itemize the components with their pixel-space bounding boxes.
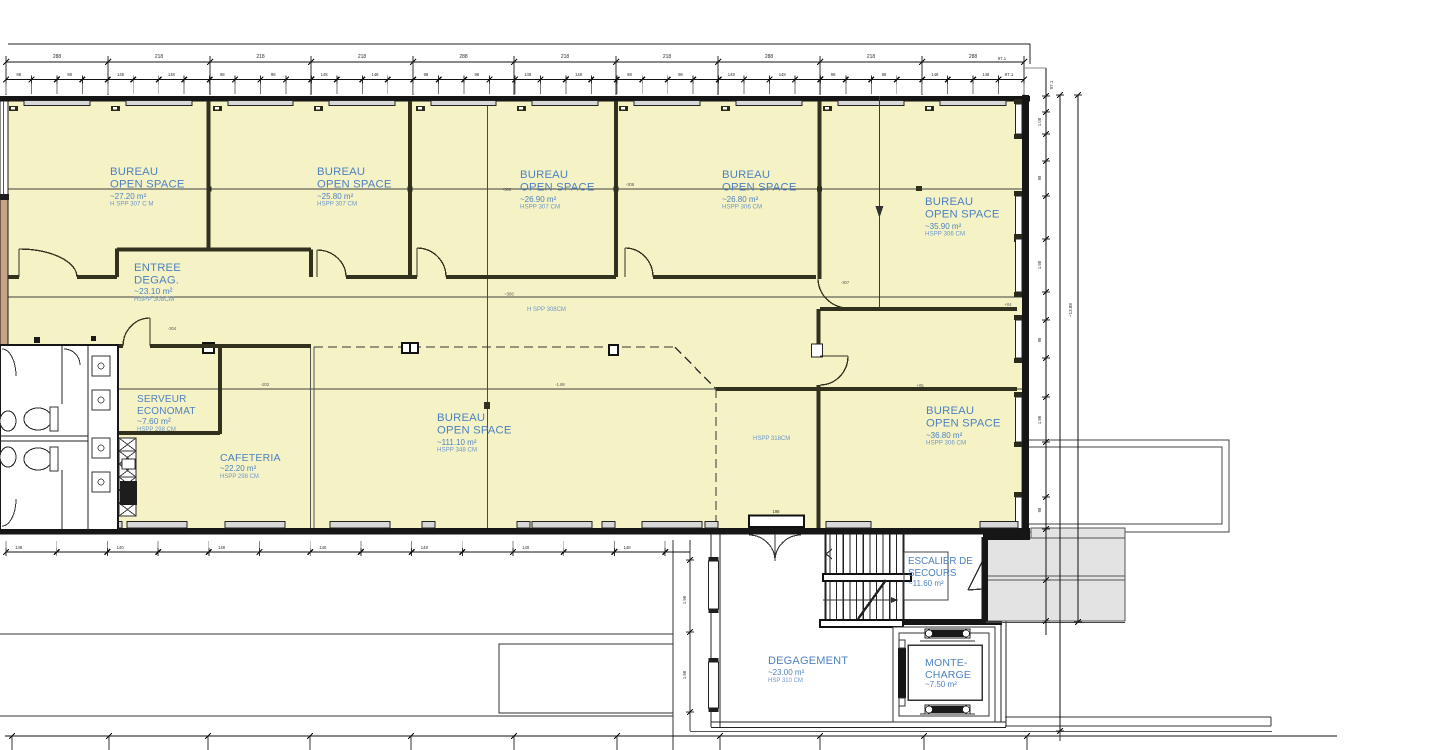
svg-text:140: 140 bbox=[117, 545, 125, 550]
svg-text:HSPP 308CM: HSPP 308CM bbox=[134, 296, 174, 303]
svg-text:HSPP 306 CM: HSPP 306 CM bbox=[926, 440, 966, 447]
svg-text:98: 98 bbox=[16, 72, 21, 77]
svg-text:~22.20 m²: ~22.20 m² bbox=[220, 464, 257, 473]
svg-text:148: 148 bbox=[421, 545, 429, 550]
svg-text:1.98: 1.98 bbox=[1037, 415, 1042, 424]
svg-text:OPEN SPACE: OPEN SPACE bbox=[520, 182, 595, 194]
svg-text:1.08: 1.08 bbox=[1037, 117, 1042, 126]
svg-text:98: 98 bbox=[1037, 175, 1042, 180]
svg-text:98: 98 bbox=[882, 72, 887, 77]
svg-text:MONTE-: MONTE- bbox=[925, 657, 968, 669]
svg-text:OPEN SPACE: OPEN SPACE bbox=[925, 209, 1000, 221]
svg-text:CAFETERIA: CAFETERIA bbox=[220, 452, 281, 464]
svg-text:148: 148 bbox=[931, 72, 939, 77]
svg-text:BUREAU: BUREAU bbox=[110, 166, 158, 178]
svg-text:-307: -307 bbox=[841, 280, 850, 285]
svg-text:DEGAG.: DEGAG. bbox=[134, 275, 179, 287]
svg-text:148: 148 bbox=[218, 545, 226, 550]
svg-text:148: 148 bbox=[982, 72, 990, 77]
svg-text:148: 148 bbox=[321, 72, 329, 77]
svg-text:148: 148 bbox=[624, 545, 632, 550]
svg-text:140: 140 bbox=[319, 545, 327, 550]
svg-text:BUREAU: BUREAU bbox=[437, 412, 485, 424]
svg-text:198: 198 bbox=[773, 509, 781, 514]
svg-text:HSP 310 CM: HSP 310 CM bbox=[768, 678, 803, 684]
svg-text:-1.88: -1.88 bbox=[555, 382, 565, 387]
svg-text:-308: -308 bbox=[626, 182, 635, 187]
svg-text:OPEN SPACE: OPEN SPACE bbox=[110, 179, 185, 191]
svg-text:1.98: 1.98 bbox=[682, 595, 687, 604]
svg-text:98: 98 bbox=[67, 72, 72, 77]
svg-text:148: 148 bbox=[575, 72, 583, 77]
svg-text:98: 98 bbox=[1037, 507, 1042, 512]
svg-text:OPEN SPACE: OPEN SPACE bbox=[722, 182, 797, 194]
svg-text:~11.60 m²: ~11.60 m² bbox=[908, 579, 944, 588]
svg-text:BUREAU: BUREAU bbox=[926, 405, 974, 417]
svg-text:288: 288 bbox=[459, 54, 468, 60]
svg-text:HSPP 298 CM: HSPP 298 CM bbox=[137, 427, 176, 433]
svg-text:148: 148 bbox=[372, 72, 380, 77]
svg-text:1.98: 1.98 bbox=[1037, 260, 1042, 269]
svg-text:SECOURS: SECOURS bbox=[908, 568, 957, 579]
svg-text:98: 98 bbox=[1037, 337, 1042, 342]
svg-text:ENTREE: ENTREE bbox=[134, 262, 181, 274]
svg-text:98: 98 bbox=[831, 72, 836, 77]
svg-text:98: 98 bbox=[678, 72, 683, 77]
svg-text:BUREAU: BUREAU bbox=[520, 169, 568, 181]
svg-text:+05: +05 bbox=[916, 383, 924, 388]
svg-text:~23.10 m²: ~23.10 m² bbox=[134, 286, 173, 296]
svg-text:218: 218 bbox=[561, 54, 570, 60]
svg-text:OPEN SPACE: OPEN SPACE bbox=[437, 425, 512, 437]
svg-text:148: 148 bbox=[524, 72, 532, 77]
svg-text:ESCALIER DE: ESCALIER DE bbox=[908, 556, 973, 567]
svg-text:SERVEUR: SERVEUR bbox=[137, 394, 187, 405]
svg-text:HSPP 306 CM: HSPP 306 CM bbox=[925, 231, 965, 238]
svg-text:-202: -202 bbox=[261, 382, 270, 387]
svg-text:H SPP 308CM: H SPP 308CM bbox=[527, 307, 566, 313]
svg-text:HSPP 307 CM: HSPP 307 CM bbox=[520, 204, 560, 211]
svg-text:~7.50 m²: ~7.50 m² bbox=[925, 680, 957, 689]
svg-text:98: 98 bbox=[627, 72, 632, 77]
svg-text:98: 98 bbox=[474, 72, 479, 77]
svg-text:~7.60 m²: ~7.60 m² bbox=[137, 416, 171, 426]
svg-text:HSPP 306 CM: HSPP 306 CM bbox=[722, 204, 762, 211]
svg-text:288: 288 bbox=[969, 54, 978, 60]
svg-text:148: 148 bbox=[117, 72, 125, 77]
svg-text:288: 288 bbox=[53, 54, 62, 60]
svg-text:288: 288 bbox=[765, 54, 774, 60]
svg-text:97.1: 97.1 bbox=[998, 56, 1007, 61]
svg-text:140: 140 bbox=[522, 545, 530, 550]
svg-text:H SPP 307 C M: H SPP 307 C M bbox=[110, 201, 154, 208]
svg-text:97.1: 97.1 bbox=[1049, 80, 1054, 89]
svg-text:-304: -304 bbox=[168, 326, 177, 331]
svg-text:OPEN SPACE: OPEN SPACE bbox=[926, 418, 1001, 430]
svg-text:~308: ~308 bbox=[504, 292, 514, 297]
svg-text:148: 148 bbox=[728, 72, 736, 77]
svg-text:+04: +04 bbox=[1004, 302, 1012, 307]
svg-text:-308: -308 bbox=[503, 187, 512, 192]
svg-text:218: 218 bbox=[155, 54, 164, 60]
svg-text:98: 98 bbox=[424, 72, 429, 77]
svg-text:HSPP 298 CM: HSPP 298 CM bbox=[220, 474, 259, 480]
svg-text:218: 218 bbox=[663, 54, 672, 60]
svg-text:~23.00 m²: ~23.00 m² bbox=[768, 668, 805, 677]
svg-text:148: 148 bbox=[168, 72, 176, 77]
svg-text:218: 218 bbox=[256, 54, 265, 60]
svg-text:BUREAU: BUREAU bbox=[317, 166, 365, 178]
svg-text:97.1: 97.1 bbox=[1005, 72, 1014, 77]
svg-text:148: 148 bbox=[15, 545, 23, 550]
svg-text:BUREAU: BUREAU bbox=[722, 169, 770, 181]
svg-text:148: 148 bbox=[779, 72, 787, 77]
svg-text:1.98: 1.98 bbox=[682, 670, 687, 679]
svg-text:218: 218 bbox=[867, 54, 876, 60]
svg-text:218: 218 bbox=[358, 54, 367, 60]
svg-text:DEGAGEMENT: DEGAGEMENT bbox=[768, 655, 848, 667]
svg-text:BUREAU: BUREAU bbox=[925, 196, 973, 208]
svg-text:HSPP 307 CM: HSPP 307 CM bbox=[317, 201, 357, 208]
svg-text:98: 98 bbox=[271, 72, 276, 77]
svg-text:~13.88: ~13.88 bbox=[1068, 303, 1073, 317]
svg-text:HSPP 348 CM: HSPP 348 CM bbox=[437, 447, 477, 454]
svg-text:HSPP 318CM: HSPP 318CM bbox=[753, 436, 790, 442]
svg-text:OPEN SPACE: OPEN SPACE bbox=[317, 179, 392, 191]
svg-text:98: 98 bbox=[220, 72, 225, 77]
